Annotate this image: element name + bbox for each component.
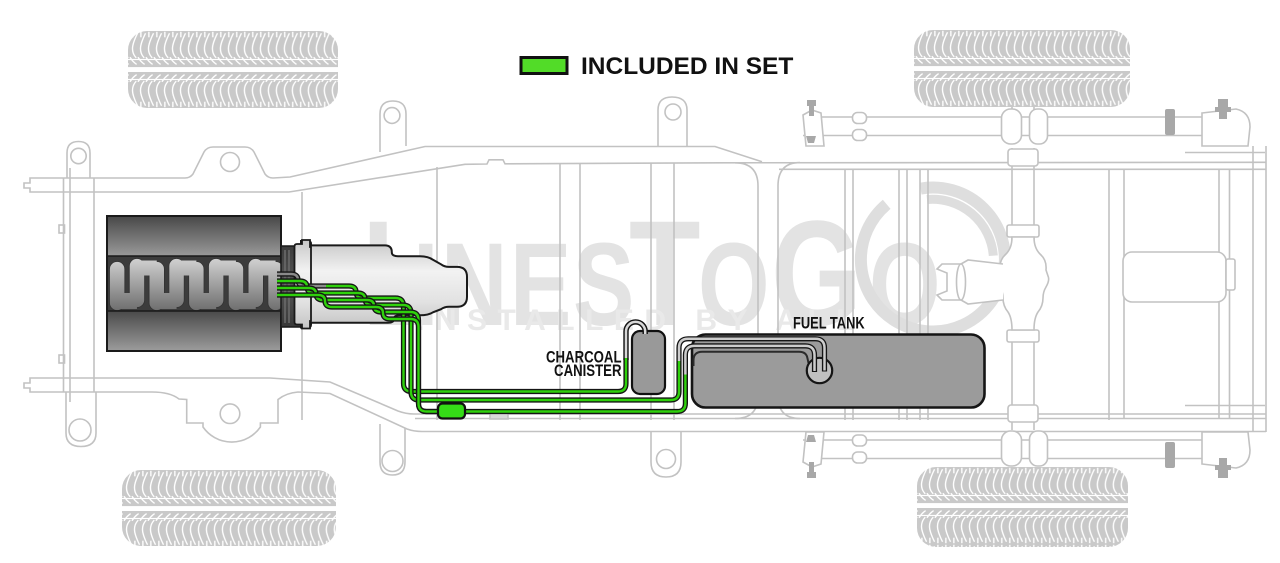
svg-text:FUEL TANK: FUEL TANK: [793, 315, 865, 333]
svg-text:INCLUDED IN SET: INCLUDED IN SET: [581, 53, 793, 80]
svg-text:CANISTER: CANISTER: [554, 362, 622, 381]
